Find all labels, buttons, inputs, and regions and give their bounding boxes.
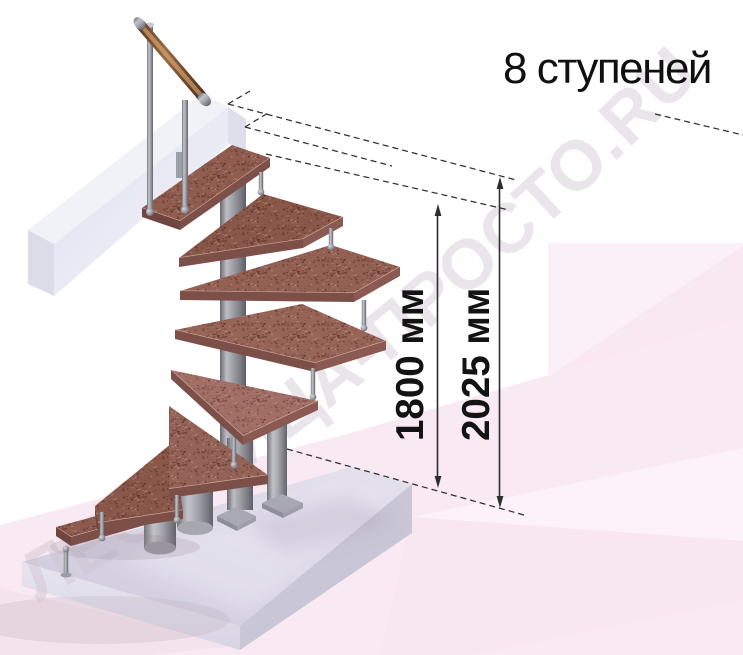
svg-text:8 ступеней: 8 ступеней xyxy=(503,44,711,93)
svg-text:2025 мм: 2025 мм xyxy=(455,288,498,441)
svg-text:1800 мм: 1800 мм xyxy=(389,288,432,441)
